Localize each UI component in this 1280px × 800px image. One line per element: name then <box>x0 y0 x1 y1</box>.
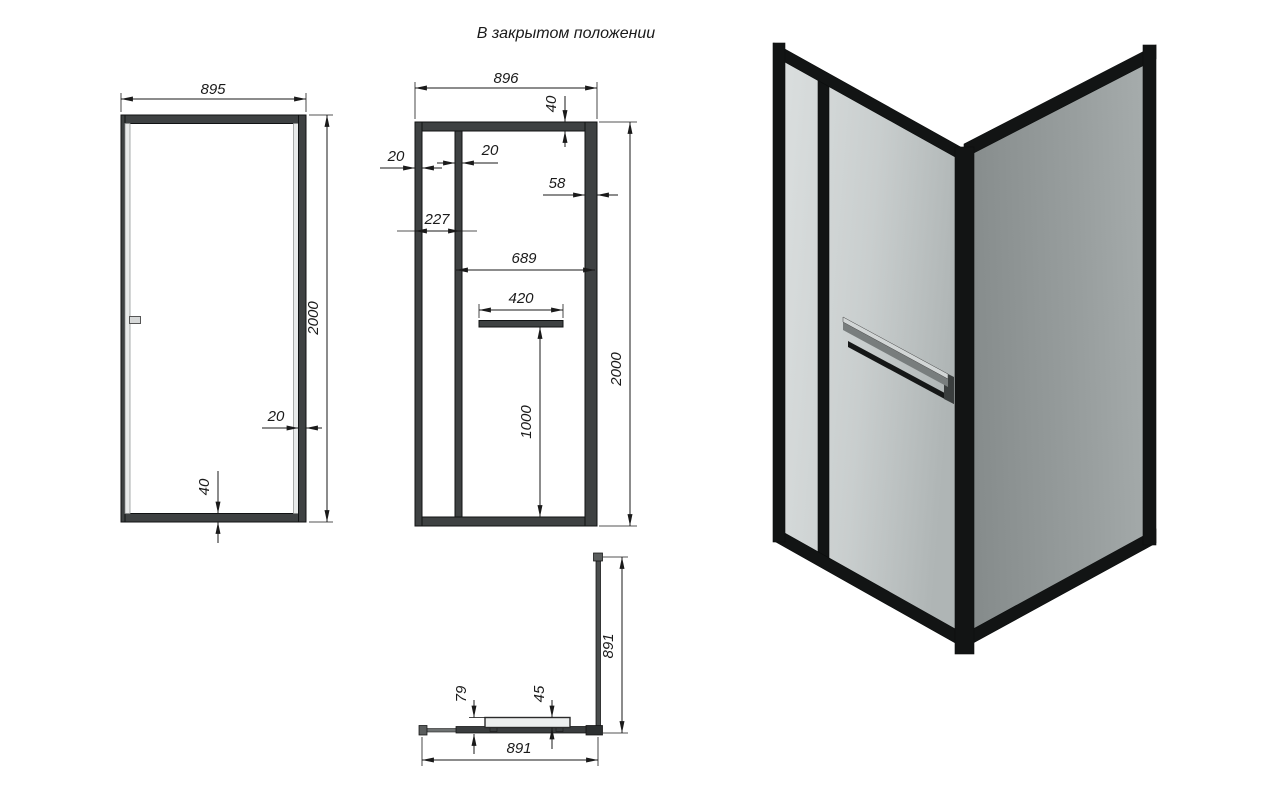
dim-label: 689 <box>511 250 537 267</box>
dim-plan-handle-offset: 79 <box>453 685 485 754</box>
iso-left-wall-profile <box>773 43 785 542</box>
drawing-canvas: В закрытом положении 895 2000 20 <box>0 0 1280 800</box>
plan-view: 891 891 79 45 <box>419 553 628 766</box>
side-left-profile <box>121 115 125 522</box>
iso-corner-post <box>955 147 974 654</box>
front-top-profile <box>415 122 597 131</box>
dim-label: 40 <box>543 95 560 112</box>
dim-label: 20 <box>481 142 499 159</box>
dim-label: 45 <box>531 685 548 702</box>
dim-label: 891 <box>506 740 531 757</box>
dim-side-width: 895 <box>121 81 306 112</box>
dim-front-wall-profile: 20 <box>380 148 442 168</box>
dim-label: 20 <box>387 148 405 165</box>
iso-right-wall-profile <box>1143 45 1156 545</box>
technical-drawing: В закрытом положении 895 2000 20 <box>0 0 1280 800</box>
side-frame-outline <box>121 115 306 522</box>
front-wall-profile <box>415 122 422 526</box>
dim-label: 227 <box>423 211 450 228</box>
dim-front-right-profile: 58 <box>543 175 618 195</box>
side-right-glass-edge <box>294 124 299 514</box>
plan-wall-profile-top <box>594 553 603 561</box>
dim-front-top-profile: 40 <box>543 95 565 147</box>
dim-label: 58 <box>549 175 566 192</box>
dim-label: 896 <box>493 70 519 87</box>
front-handle <box>479 321 563 328</box>
dim-front-stile: 20 <box>437 142 499 163</box>
plan-corner-connector <box>586 726 603 736</box>
dim-label: 79 <box>453 685 470 702</box>
side-view: 895 2000 20 40 <box>121 81 333 543</box>
dim-plan-width: 891 <box>422 737 598 766</box>
dim-label: 40 <box>196 478 213 495</box>
dim-front-handle-height: 1000 <box>518 327 540 517</box>
front-view: 896 40 20 20 58 227 689 <box>380 70 637 526</box>
dim-front-fixed-panel: 227 <box>397 211 477 231</box>
front-right-profile <box>585 122 597 526</box>
drawing-title: В закрытом положении <box>477 25 655 42</box>
dim-side-profile: 20 <box>262 408 322 428</box>
iso-door-stile <box>818 68 829 571</box>
plan-wall-profile-left <box>419 726 427 736</box>
dim-label: 420 <box>508 290 534 307</box>
dim-front-door-opening: 689 <box>456 250 595 270</box>
dim-front-height: 2000 <box>599 122 637 526</box>
dim-plan-depth: 891 <box>600 557 628 733</box>
dim-label: 2000 <box>305 301 322 336</box>
front-door-stile <box>455 131 462 517</box>
dim-label: 20 <box>267 408 285 425</box>
dim-front-handle-width: 420 <box>479 290 563 318</box>
dim-front-width: 896 <box>415 70 597 119</box>
isometric-view <box>773 43 1156 654</box>
dim-label: 895 <box>200 81 226 98</box>
dim-side-bottom-profile: 40 <box>196 471 218 543</box>
dim-label: 1000 <box>518 405 535 439</box>
plan-handle <box>485 718 570 728</box>
dim-side-height: 2000 <box>305 115 333 522</box>
side-bottom-profile <box>121 514 306 523</box>
side-handle-tab <box>130 317 141 324</box>
dim-label: 891 <box>600 633 617 658</box>
side-top-profile <box>121 115 306 124</box>
front-bottom-profile <box>415 517 597 526</box>
dim-label: 2000 <box>608 352 625 387</box>
